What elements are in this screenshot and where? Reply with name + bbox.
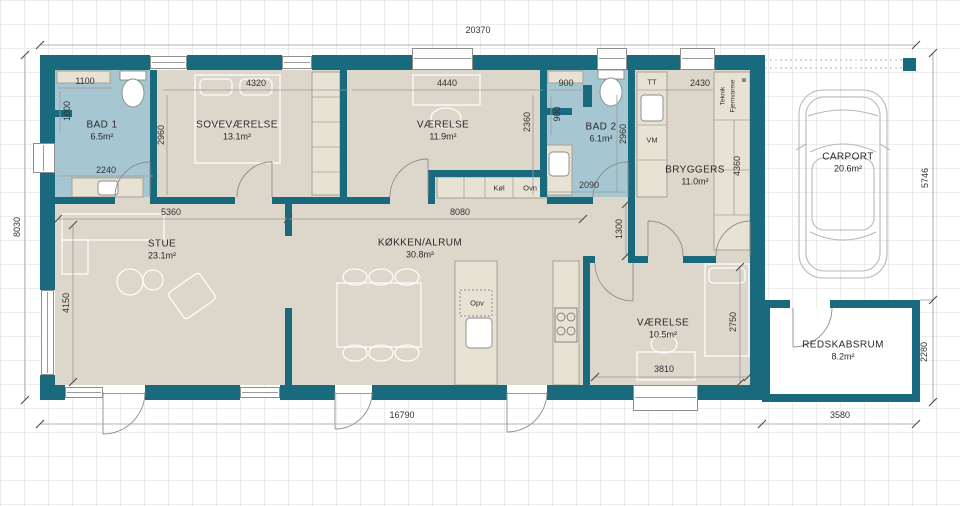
wall bbox=[40, 55, 150, 70]
dim-left-height: 8030 bbox=[12, 217, 22, 237]
window bbox=[597, 48, 627, 70]
dim-carport-depth: 5746 bbox=[920, 168, 930, 188]
dim-vaer2-bottom: 3810 bbox=[654, 364, 674, 374]
dim-sove-left: 2960 bbox=[156, 125, 166, 145]
wall bbox=[55, 197, 115, 204]
wall bbox=[762, 300, 770, 402]
wall bbox=[627, 55, 680, 70]
room-label-vaerelse2: VÆRELSE10.5m² bbox=[637, 317, 689, 342]
exterior-door-3 bbox=[507, 392, 547, 432]
wall bbox=[272, 197, 390, 204]
window bbox=[33, 143, 55, 173]
wall bbox=[547, 385, 633, 400]
dim-vaer1-right: 2360 bbox=[522, 112, 532, 132]
dim-vaer1-top: 4440 bbox=[437, 78, 457, 88]
wall bbox=[830, 300, 920, 308]
wall bbox=[150, 197, 235, 204]
wall bbox=[40, 173, 55, 290]
label-koel: Køl bbox=[493, 184, 504, 193]
wall bbox=[312, 55, 412, 70]
label-ovn: Ovn bbox=[523, 184, 537, 193]
dim-stue-left: 4150 bbox=[61, 293, 71, 313]
floor-plan: BAD 16.5m² SOVEVÆRELSE13.1m² VÆRELSE11.9… bbox=[0, 0, 960, 506]
wall bbox=[698, 385, 750, 400]
wall bbox=[683, 256, 716, 263]
dim-overall-width: 20370 bbox=[465, 25, 490, 35]
dim-bottom-main: 16790 bbox=[389, 410, 414, 420]
wall bbox=[340, 70, 347, 197]
dim-hall: 1300 bbox=[614, 219, 624, 239]
dim-bad2-nook-w: 900 bbox=[558, 78, 573, 88]
district-heating-icon: ⊕ bbox=[741, 76, 746, 84]
wall bbox=[428, 170, 547, 177]
dim-stue-top: 5360 bbox=[161, 207, 181, 217]
window bbox=[633, 385, 698, 411]
dim-bryggers-right: 4360 bbox=[732, 156, 742, 176]
window bbox=[282, 56, 312, 69]
dim-bryggers-top: 2430 bbox=[690, 78, 710, 88]
room-label-redskabsrum: REDSKABSRUM8.2m² bbox=[802, 339, 884, 364]
carport-outline bbox=[765, 58, 916, 71]
dim-sove-top: 4320 bbox=[246, 78, 266, 88]
dim-koekken-top: 8080 bbox=[450, 207, 470, 217]
window bbox=[41, 290, 54, 375]
dim-bad2-right: 2960 bbox=[618, 124, 628, 144]
wall bbox=[715, 55, 750, 70]
label-vm: VM bbox=[646, 136, 657, 145]
wall bbox=[285, 308, 292, 385]
label-opv: Opv bbox=[470, 299, 484, 308]
room-label-bryggers: BRYGGERS11.0m² bbox=[665, 164, 725, 189]
wall bbox=[285, 204, 292, 236]
wall bbox=[628, 70, 635, 263]
car-icon bbox=[796, 90, 890, 278]
window bbox=[150, 56, 187, 69]
label-teknik: Teknik bbox=[720, 87, 727, 105]
wall bbox=[540, 70, 547, 197]
wall bbox=[583, 256, 590, 385]
window bbox=[680, 48, 715, 70]
dim-redskabsrum-width: 3580 bbox=[830, 410, 850, 420]
exterior-door-opening bbox=[507, 385, 547, 394]
exterior-door-1 bbox=[103, 392, 145, 434]
room-label-koekken: KØKKEN/ALRUM30.8m² bbox=[378, 237, 462, 262]
wall bbox=[547, 197, 593, 204]
wall bbox=[145, 385, 240, 400]
wall bbox=[583, 85, 592, 107]
window bbox=[65, 387, 103, 398]
label-tt: TT bbox=[647, 78, 656, 87]
room-label-vaerelse1: VÆRELSE11.9m² bbox=[417, 119, 469, 144]
room-label-sovevaerelse: SOVEVÆRELSE13.1m² bbox=[196, 119, 278, 144]
room-label-carport: CARPORT20.6m² bbox=[822, 151, 874, 176]
dim-bad1-left: 1000 bbox=[62, 101, 72, 121]
dim-vaer2-right: 2750 bbox=[728, 312, 738, 332]
dim-redskabsrum-depth: 2280 bbox=[919, 342, 929, 362]
wall bbox=[187, 55, 282, 70]
wall bbox=[762, 394, 920, 402]
dim-bad1-top: 1100 bbox=[75, 76, 94, 86]
wall bbox=[372, 385, 507, 400]
dim-bad2-bottom: 2090 bbox=[579, 180, 599, 190]
dim-bad1-bottom: 2240 bbox=[96, 165, 116, 175]
wall bbox=[280, 385, 335, 400]
window bbox=[412, 48, 473, 70]
wall bbox=[40, 55, 55, 143]
wall bbox=[473, 55, 597, 70]
label-fjernvarme: Fjernvarme bbox=[730, 80, 737, 113]
room-label-bad1: BAD 16.5m² bbox=[87, 119, 118, 144]
exterior-door-opening bbox=[335, 385, 372, 394]
window bbox=[240, 387, 280, 398]
wall bbox=[40, 385, 65, 400]
room-label-stue: STUE23.1m² bbox=[148, 238, 176, 263]
exterior-door-2 bbox=[335, 392, 372, 429]
room-label-bad2: BAD 26.1m² bbox=[586, 121, 617, 146]
wall bbox=[633, 256, 648, 263]
carport-post bbox=[903, 58, 916, 71]
dim-bad2-nook-h: 900 bbox=[552, 106, 562, 121]
exterior-door-opening bbox=[103, 385, 145, 394]
